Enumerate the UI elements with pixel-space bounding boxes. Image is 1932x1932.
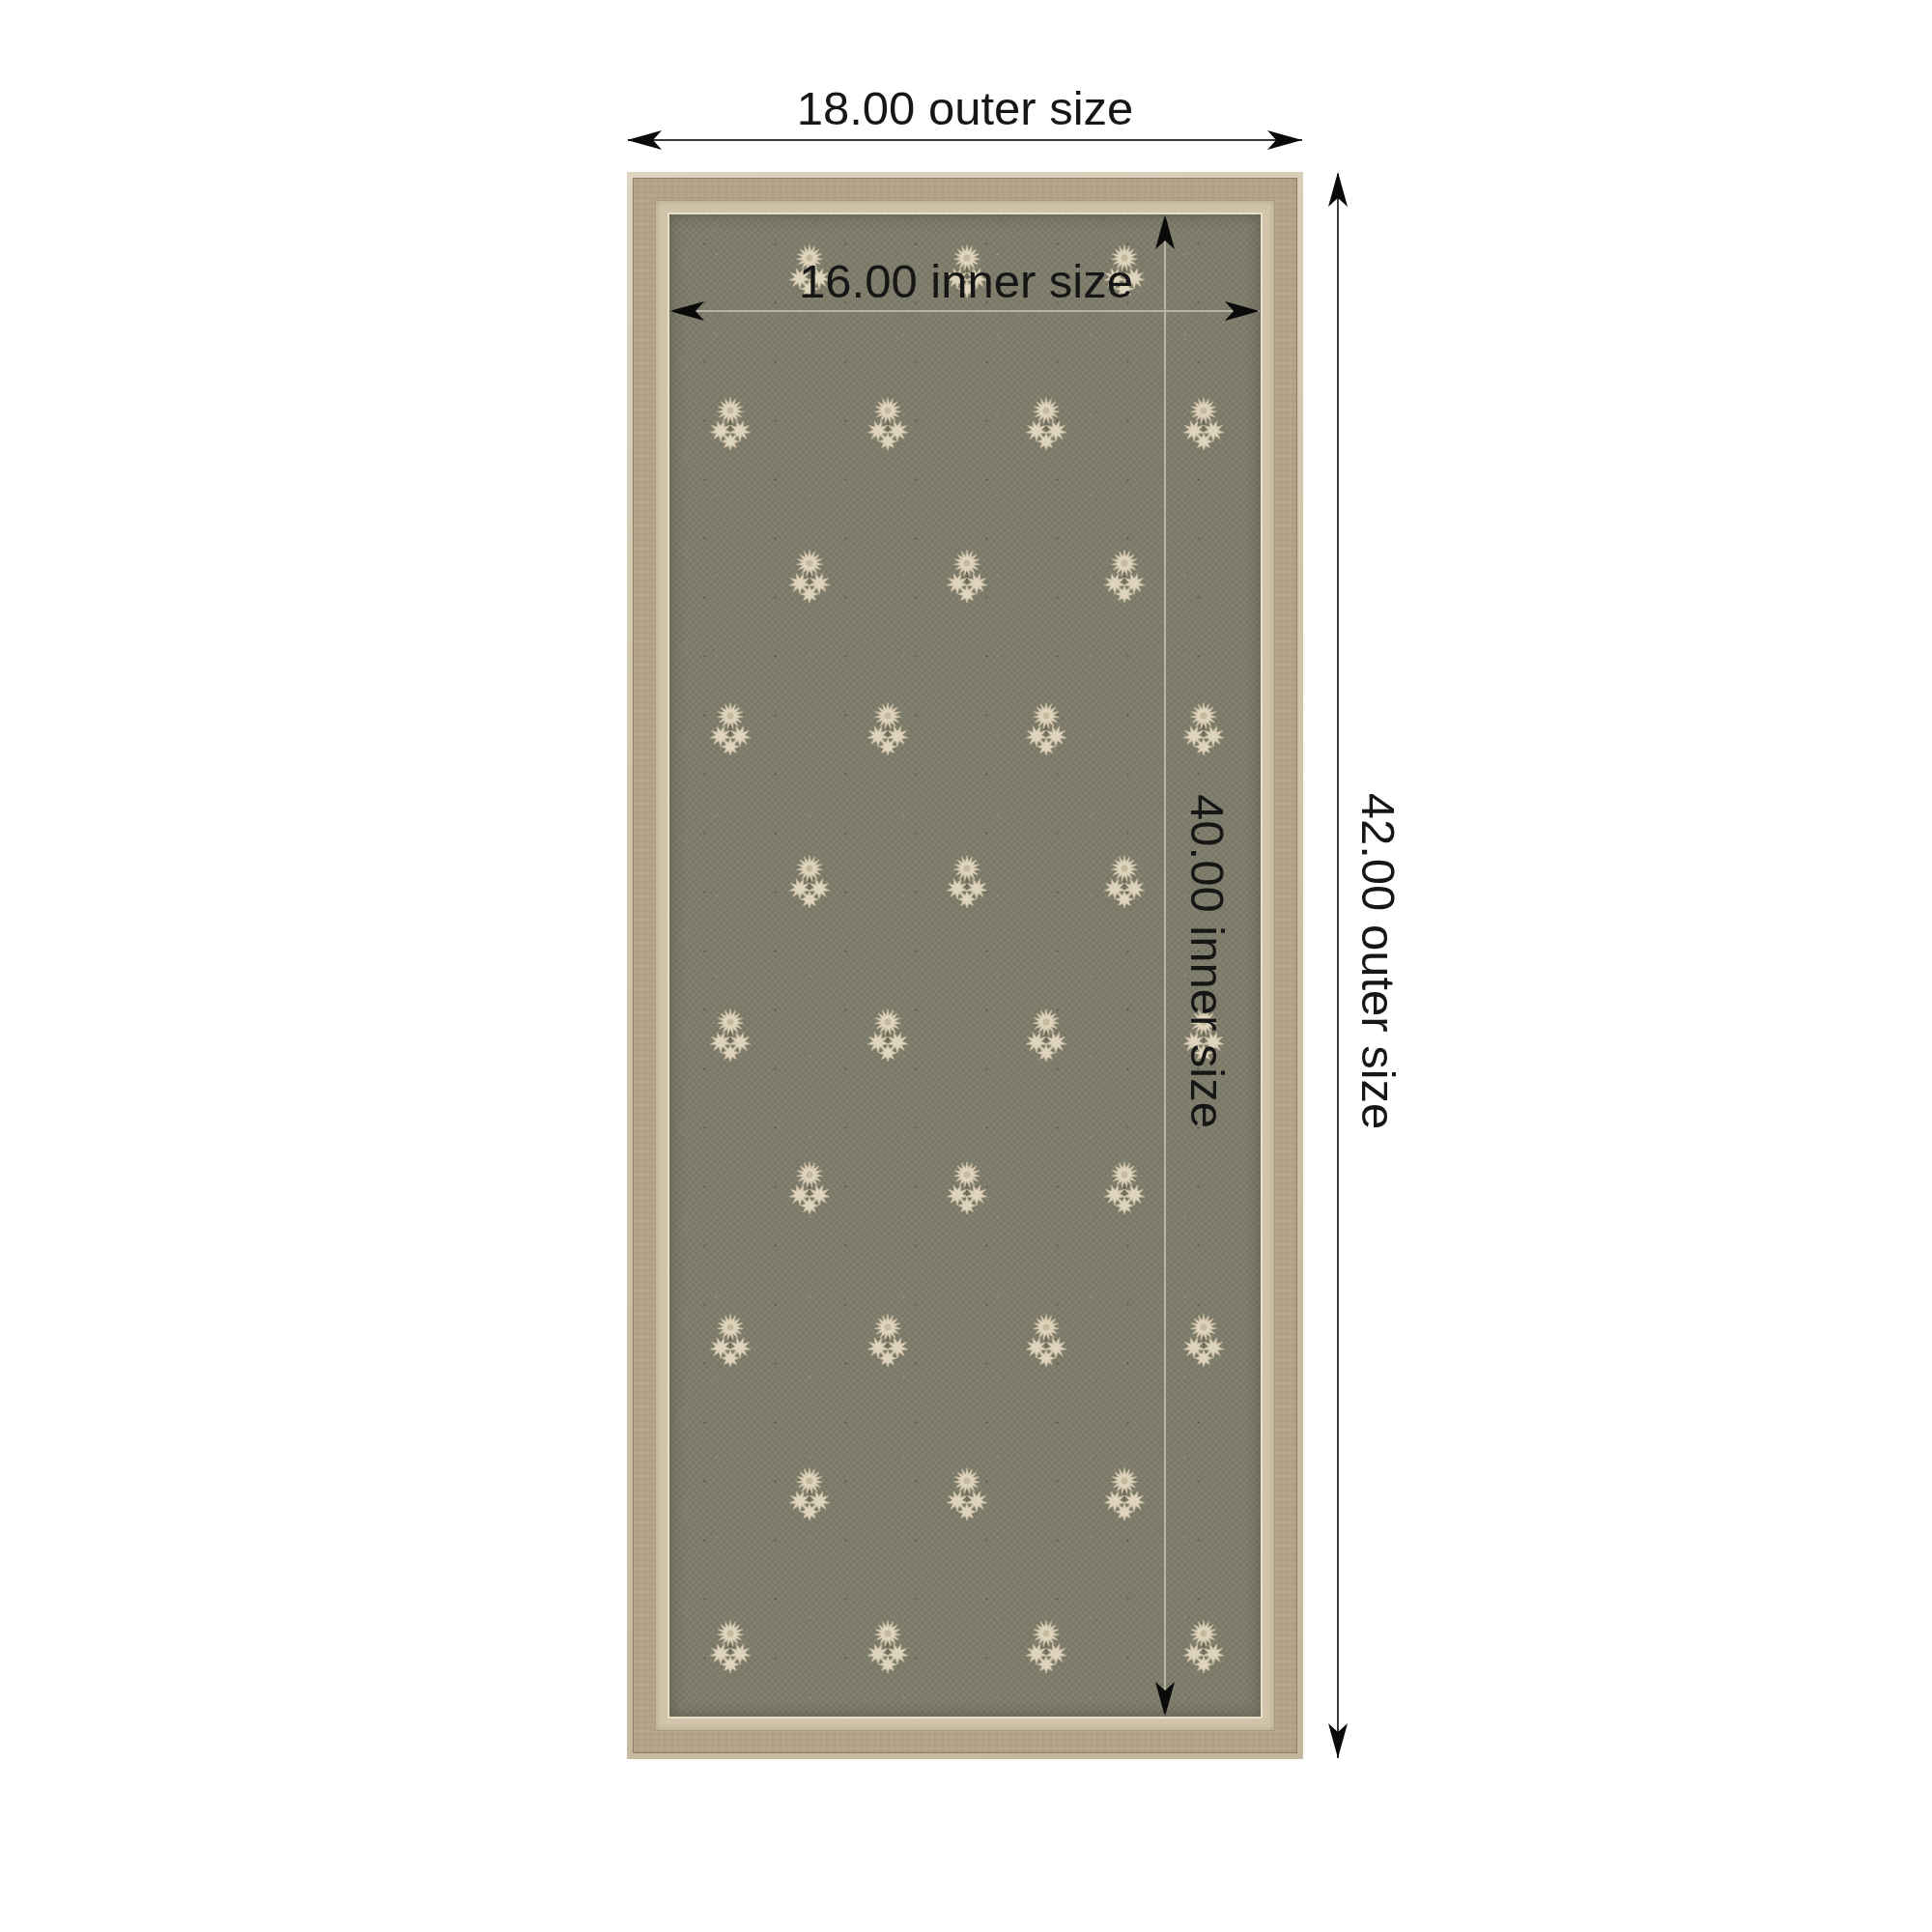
motif-icon xyxy=(1025,1009,1067,1065)
arrow-left-icon xyxy=(669,298,704,324)
inner-height-label: 40.00 inner size xyxy=(1180,794,1235,1128)
motif-icon xyxy=(946,550,988,606)
motif-icon xyxy=(1103,855,1146,911)
arrow-up-icon xyxy=(1152,214,1178,249)
motif-icon xyxy=(1103,550,1146,606)
motif-icon xyxy=(788,550,831,606)
motif-icon xyxy=(946,1467,988,1523)
motif-icon xyxy=(867,1314,909,1370)
motif-icon xyxy=(1025,1314,1067,1370)
motif-icon xyxy=(867,397,909,453)
product-dimension-diagram: 18.00 outer size 16.00 inner size 40.00 … xyxy=(0,0,1932,1932)
dimension-line xyxy=(1337,174,1339,1758)
dimension-line xyxy=(1164,215,1166,1716)
arrow-down-icon xyxy=(1325,1723,1350,1758)
arrow-right-icon xyxy=(1267,128,1302,153)
motif-icon xyxy=(1182,1620,1225,1676)
motif-icon xyxy=(1182,1314,1225,1370)
outer-width-label: 18.00 outer size xyxy=(627,81,1303,135)
outer-height-label: 42.00 outer size xyxy=(1351,793,1406,1130)
motif-icon xyxy=(1103,1161,1146,1217)
motif-icon xyxy=(788,1161,831,1217)
arrow-up-icon xyxy=(1325,172,1350,207)
motif-icon xyxy=(1025,1620,1067,1676)
motif-icon xyxy=(788,1467,831,1523)
motif-icon xyxy=(1182,702,1225,758)
motif-icon xyxy=(709,1620,752,1676)
inner-width-label: 16.00 inner size xyxy=(628,254,1304,308)
motif-icon xyxy=(709,1314,752,1370)
dimension-line xyxy=(670,310,1260,312)
motif-icon xyxy=(709,397,752,453)
motif-icon xyxy=(946,1161,988,1217)
motif-icon xyxy=(709,1009,752,1065)
motif-pattern xyxy=(669,214,1261,1717)
motif-icon xyxy=(867,702,909,758)
motif-icon xyxy=(788,855,831,911)
motif-icon xyxy=(1182,397,1225,453)
motif-icon xyxy=(867,1620,909,1676)
arrow-right-icon xyxy=(1225,298,1260,324)
arrow-left-icon xyxy=(627,128,662,153)
fabric-panel xyxy=(669,214,1261,1717)
motif-icon xyxy=(1103,1467,1146,1523)
motif-icon xyxy=(709,702,752,758)
dimension-line xyxy=(628,139,1302,141)
motif-icon xyxy=(1025,702,1067,758)
motif-icon xyxy=(867,1009,909,1065)
motif-icon xyxy=(1025,397,1067,453)
motif-icon xyxy=(946,855,988,911)
arrow-down-icon xyxy=(1152,1682,1178,1717)
